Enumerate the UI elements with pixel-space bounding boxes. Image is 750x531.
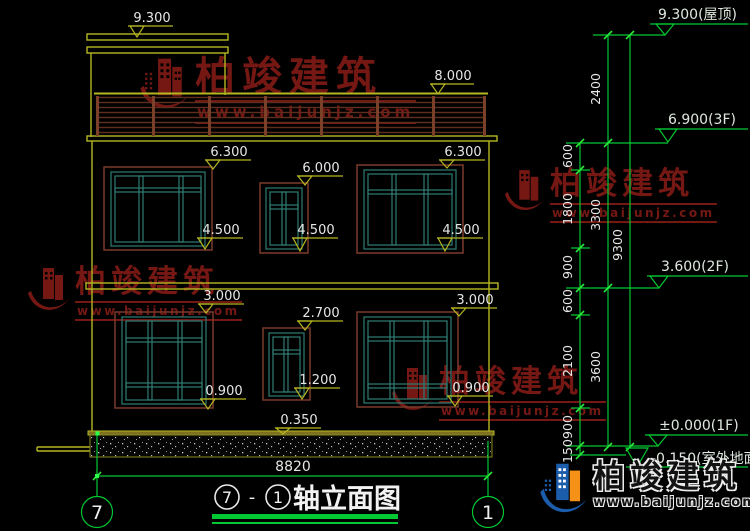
grip-dot [95,474,99,478]
axis-number-7: 7 [91,502,103,524]
drawing-title: 7 - 1 轴立面图 [212,483,401,524]
brand-name: 柏竣建筑 [593,460,750,494]
title-axis-from: 7 [222,488,232,507]
elev-label-2f-mid-sill: 4.500 [297,223,334,238]
dim-600b: 600 [560,289,575,313]
elev-label-roof: 9.300 [133,11,170,26]
plinth-granite [90,435,492,457]
level-2f: 3.600(2F) [661,259,729,275]
plinth-top-band [88,431,494,435]
cad-elevation-drawing: 柏竣建筑 www.baijunjz.com 柏竣建筑 www.baijunjz.… [0,0,750,531]
elev-label-1f-left-sill: 0.900 [205,384,242,399]
window-1f-right [357,312,458,407]
elev-label-plinth: 0.350 [280,413,317,428]
title-dash: - [249,487,256,508]
overall-width-label: 8820 [275,459,311,475]
title-text: 轴立面图 [293,483,401,515]
dim-9300: 9300 [610,229,625,261]
title-axis-to: 1 [273,488,283,507]
elev-label-2f-right-top: 6.300 [444,145,481,160]
roof-parapet-top [87,34,228,40]
elev-label-1f-mid-top: 2.700 [302,306,339,321]
dimension-chain-labels: 600 1800 900 600 2100 900 150 2400 3300 … [560,73,625,463]
level-markers [626,24,748,467]
elev-label-2f-mid-top: 6.000 [302,161,339,176]
second-floor-slab-band [86,283,498,289]
elevation-linework: 9.300 8.000 6.300 6.000 6.300 4.500 4.50… [0,0,750,531]
dim-3300: 3300 [588,199,603,231]
window-2f-right [357,165,463,253]
grip-dot [96,432,100,436]
dim-1800: 1800 [560,193,575,225]
window-2f-middle [260,183,308,253]
elev-label-2f-left-sill: 4.500 [202,223,239,238]
elev-label-1f-left-top: 3.000 [203,289,240,304]
dim-900a: 900 [560,255,575,279]
elev-label-2f-right-sill: 4.500 [442,223,479,238]
window-1f-middle [263,328,310,400]
title-underline-thick [212,514,398,519]
brand-logo: 柏竣建筑 www.baijunjz.com [538,460,750,522]
terrace-slab-band [87,136,497,141]
window-1f-left [115,312,213,408]
brand-url: www.baijunjz.com [593,495,750,510]
window-2f-left [104,167,212,250]
elev-label-1f-right-top: 3.000 [456,293,493,308]
elev-label-2f-left-top: 6.300 [210,145,247,160]
title-underline-thin [212,522,398,524]
axis-number-1: 1 [482,502,494,524]
dim-600a: 600 [560,144,575,168]
dim-2100: 2100 [560,345,575,377]
dim-900b: 900 [560,415,575,439]
level-3f: 6.900(3F) [668,112,736,128]
level-labels: 9.300(屋顶) 6.900(3F) 3.600(2F) ±0.000(1F)… [651,7,750,467]
brand-building-icon [538,460,588,522]
elev-label-rail-top: 8.000 [434,69,471,84]
dim-3600: 3600 [588,351,603,383]
facade-elevation-labels: 9.300 8.000 6.300 6.000 6.300 4.500 4.50… [133,11,493,428]
elev-label-1f-mid-sill: 1.200 [299,373,336,388]
dimension-tick-marks [576,31,634,459]
roof-parapet-band [87,47,228,53]
level-roof: 9.300(屋顶) [658,7,737,23]
dim-2400: 2400 [588,73,603,105]
elev-label-1f-right-sill: 0.900 [452,381,489,396]
level-1f: ±0.000(1F) [659,418,739,434]
windows [104,165,463,408]
